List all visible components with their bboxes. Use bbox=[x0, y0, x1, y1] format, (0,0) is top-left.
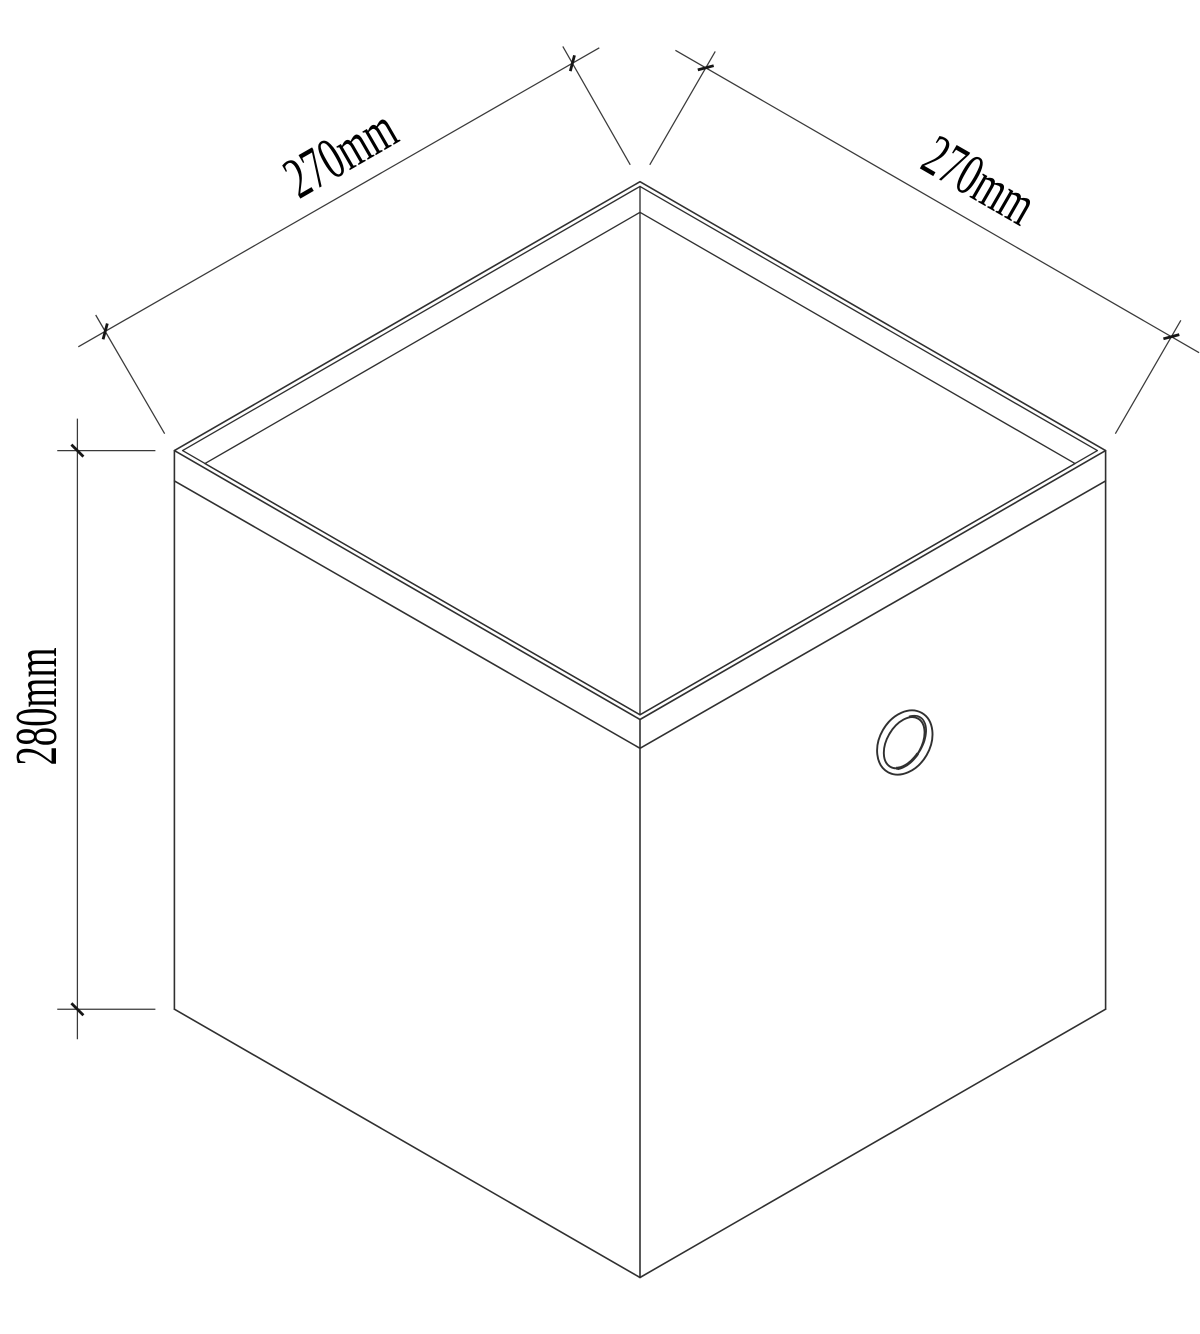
svg-text:270mm: 270mm bbox=[912, 122, 1047, 237]
svg-text:280mm: 280mm bbox=[4, 647, 69, 765]
svg-text:270mm: 270mm bbox=[273, 95, 408, 210]
